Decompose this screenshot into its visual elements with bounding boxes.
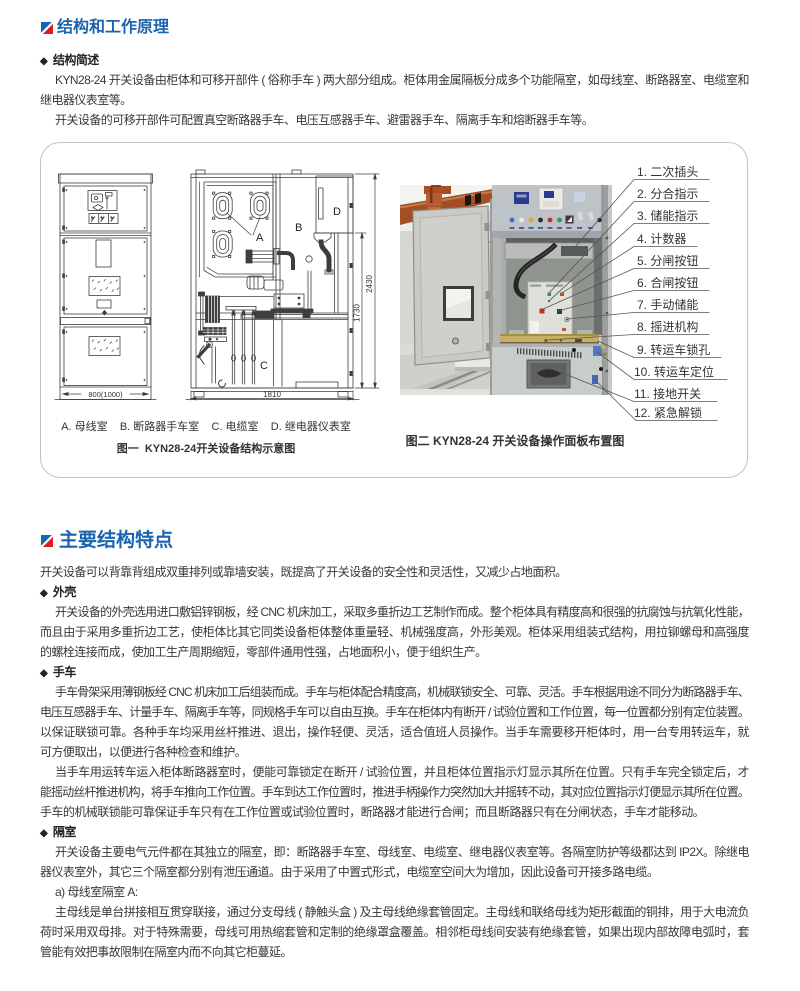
svg-text:800(1000): 800(1000) xyxy=(88,390,123,399)
svg-text:10. 转运车定位: 10. 转运车定位 xyxy=(634,364,714,379)
svg-text:B: B xyxy=(295,222,302,234)
svg-text:4. 计数器: 4. 计数器 xyxy=(637,231,686,246)
svg-text:2. 分合指示: 2. 分合指示 xyxy=(637,186,698,201)
svg-text:2430: 2430 xyxy=(365,275,374,293)
svg-text:D: D xyxy=(333,206,341,218)
svg-text:C: C xyxy=(260,360,268,372)
svg-text:1730: 1730 xyxy=(353,304,362,322)
svg-text:3. 储能指示: 3. 储能指示 xyxy=(637,208,698,223)
svg-text:11. 接地开关: 11. 接地开关 xyxy=(634,386,701,401)
svg-text:A: A xyxy=(256,232,264,244)
svg-text:1810: 1810 xyxy=(263,390,281,399)
svg-text:9. 转运车锁孔: 9. 转运车锁孔 xyxy=(637,342,710,357)
svg-text:12. 紧急解锁: 12. 紧急解锁 xyxy=(634,405,702,420)
svg-text:7. 手动储能: 7. 手动储能 xyxy=(637,297,698,312)
svg-text:5. 分闸按钮: 5. 分闸按钮 xyxy=(637,253,698,268)
svg-text:8. 摇进机构: 8. 摇进机构 xyxy=(637,319,698,334)
svg-text:1. 二次插头: 1. 二次插头 xyxy=(637,165,698,179)
svg-text:6. 合闸按钮: 6. 合闸按钮 xyxy=(637,275,698,290)
